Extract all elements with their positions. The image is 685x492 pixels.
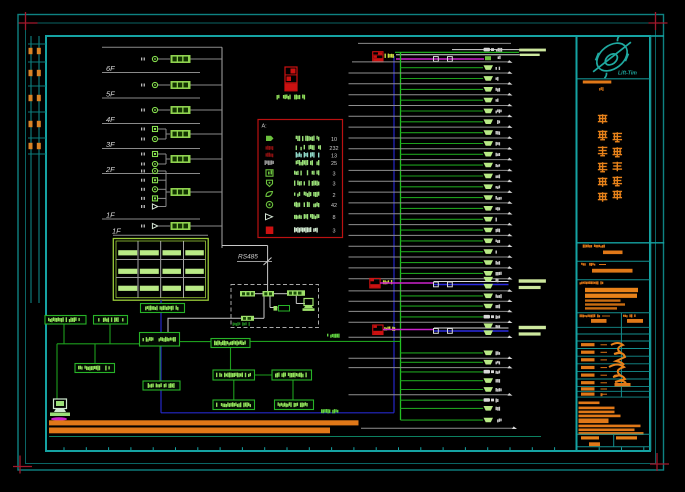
svg-text:3: 3 bbox=[332, 182, 335, 188]
svg-text:RS485: RS485 bbox=[238, 254, 258, 261]
svg-text:1F: 1F bbox=[112, 227, 121, 236]
svg-text:4F: 4F bbox=[106, 115, 115, 124]
svg-text:232: 232 bbox=[329, 146, 338, 152]
svg-text:10: 10 bbox=[331, 137, 337, 143]
svg-text:13: 13 bbox=[331, 153, 337, 159]
svg-text:8: 8 bbox=[332, 215, 335, 221]
svg-text:3: 3 bbox=[332, 171, 335, 177]
svg-text:3: 3 bbox=[332, 228, 335, 234]
svg-text:25: 25 bbox=[331, 161, 337, 167]
svg-text:2F: 2F bbox=[105, 165, 115, 174]
svg-text:A:: A: bbox=[262, 124, 268, 130]
svg-text:Lift-Tim: Lift-Tim bbox=[618, 71, 637, 77]
svg-text:5F: 5F bbox=[106, 90, 115, 99]
svg-text:1F: 1F bbox=[106, 211, 115, 220]
svg-text:2: 2 bbox=[332, 193, 335, 199]
svg-text:6F: 6F bbox=[106, 64, 115, 73]
svg-text:42: 42 bbox=[331, 203, 337, 209]
svg-text:3F: 3F bbox=[106, 140, 115, 149]
